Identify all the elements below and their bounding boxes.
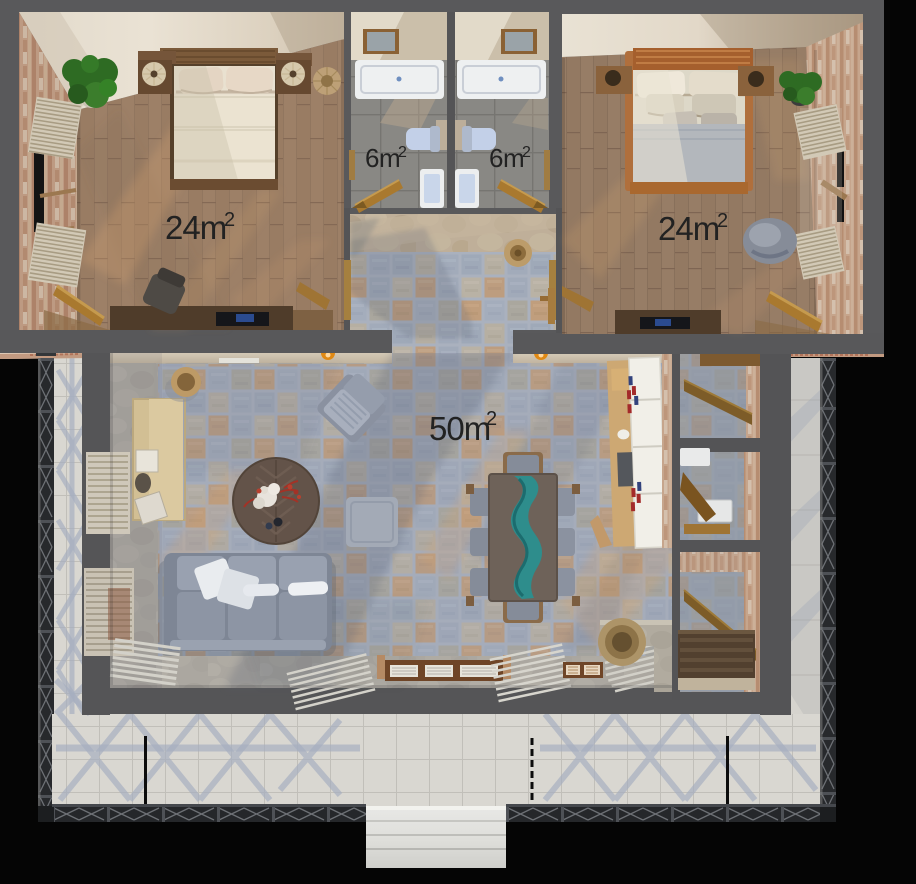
svg-text:2: 2: [717, 210, 728, 232]
svg-text:24m: 24m: [165, 209, 226, 246]
svg-text:2: 2: [522, 144, 531, 161]
svg-text:6m: 6m: [365, 143, 400, 173]
svg-text:24m: 24m: [658, 210, 719, 247]
svg-text:50m: 50m: [429, 410, 490, 447]
svg-text:2: 2: [486, 408, 497, 430]
svg-text:2: 2: [398, 144, 407, 161]
svg-text:6m: 6m: [489, 143, 524, 173]
svg-text:2: 2: [224, 209, 235, 231]
